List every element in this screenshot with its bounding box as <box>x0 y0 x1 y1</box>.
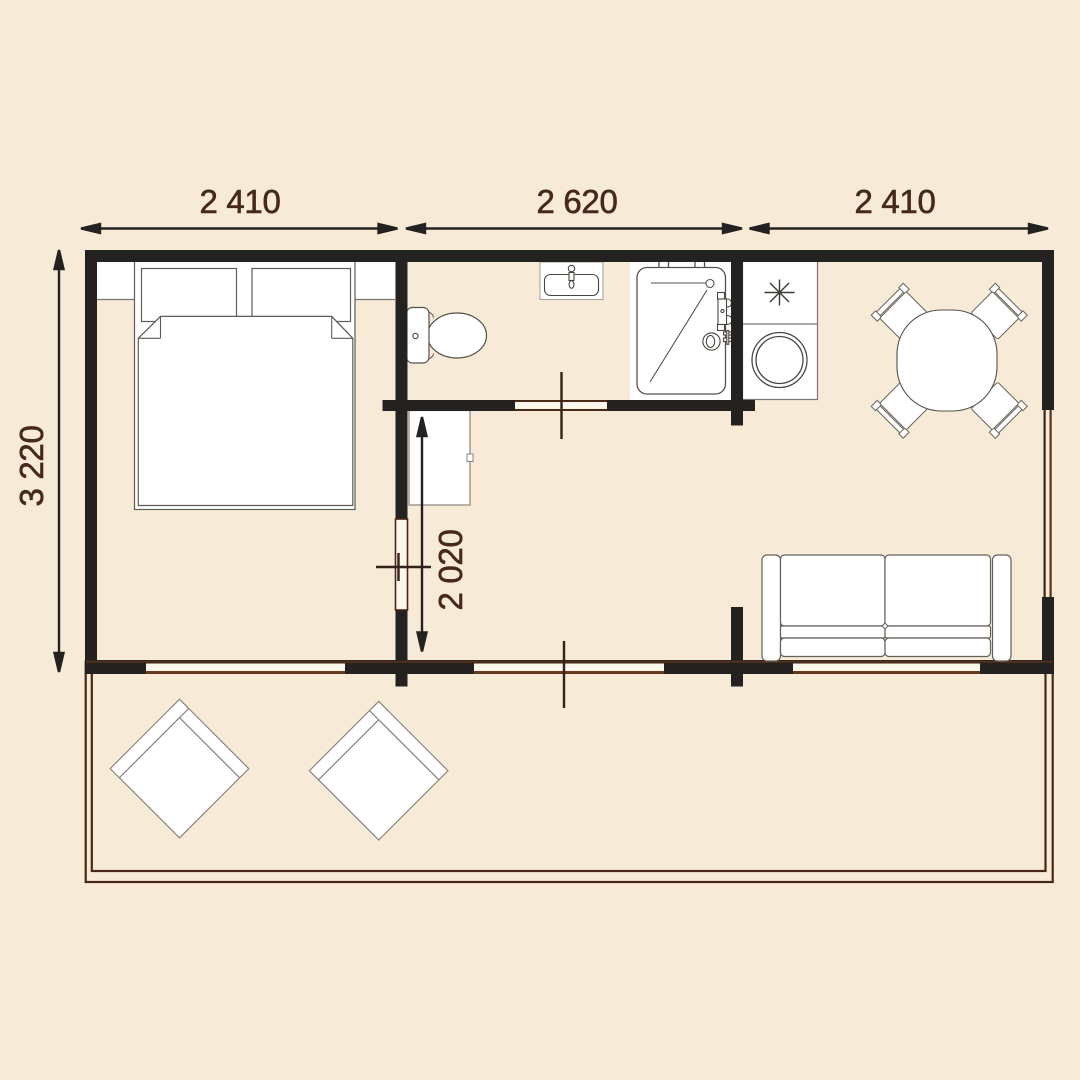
svg-text:2 020: 2 020 <box>432 529 469 610</box>
svg-text:2 410: 2 410 <box>199 183 280 220</box>
svg-text:2 620: 2 620 <box>536 183 617 220</box>
svg-text:2 410: 2 410 <box>854 183 935 220</box>
svg-text:3 220: 3 220 <box>13 425 50 506</box>
